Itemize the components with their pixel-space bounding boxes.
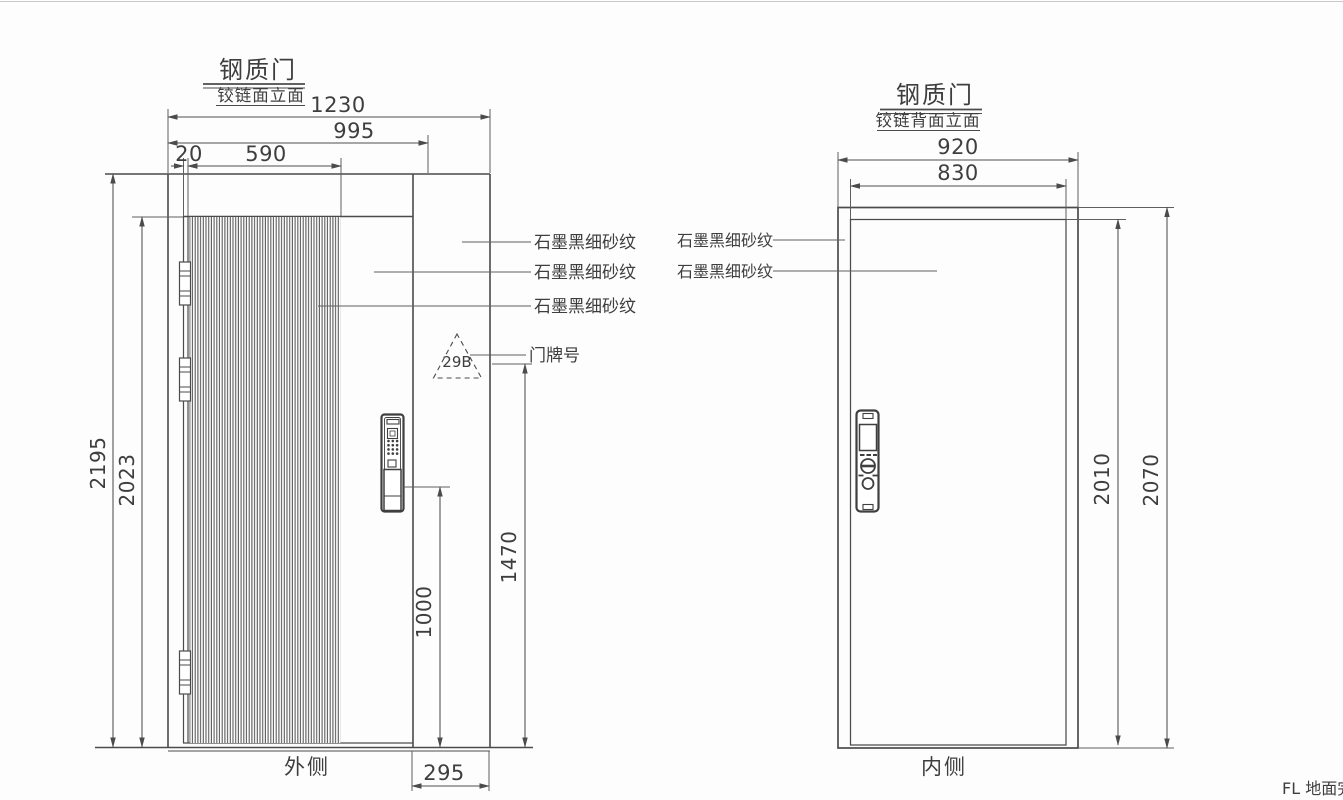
right-dimensions: 920 830 2010 2070 [838, 135, 1174, 748]
dim-side-panel-width: 295 [423, 761, 465, 785]
left-door-leaf [183, 216, 413, 743]
drawing-sheet: 钢质门 铰链面立面 [0, 0, 1343, 800]
right-side-label: 内侧 [921, 755, 967, 779]
label-finish-face: 石墨黑细砂纹 [534, 263, 636, 283]
ribbed-texture-area [190, 217, 341, 743]
label-door-plate: 门牌号 [529, 346, 580, 366]
label-right-finish-frame: 石墨黑细砂纹 [677, 231, 773, 250]
left-side-label: 外侧 [284, 755, 330, 779]
dim-total-width: 1230 [310, 93, 365, 117]
left-annotations: 石墨黑细砂纹 石墨黑细砂纹 石墨黑细砂纹 29B 门牌号 [318, 233, 636, 378]
right-drawing-title: 钢质门 [896, 81, 974, 109]
door-plate-number: 29B [442, 353, 471, 371]
dim-right-frame-width: 920 [937, 135, 979, 159]
left-door-elevation: 钢质门 铰链面立面 [86, 56, 636, 791]
dim-plate-height: 1470 [497, 531, 521, 584]
lock-handle [384, 470, 401, 511]
floor-level-note: FL 地面完 [1282, 779, 1343, 798]
dim-right-frame-height: 2070 [1139, 454, 1163, 507]
right-door-elevation: 钢质门 铰链背面立面 [677, 81, 1174, 779]
label-finish-panel: 石墨黑细砂纹 [534, 233, 636, 253]
dim-ribbed-width: 590 [245, 142, 287, 166]
right-door-leaf [851, 220, 1067, 746]
label-finish-ribbed: 石墨黑细砂纹 [534, 297, 636, 317]
hinge-middle [180, 358, 191, 401]
hinge-bottom [180, 651, 191, 694]
dim-lock-height: 1000 [412, 586, 436, 639]
smart-lock-exterior [382, 415, 404, 512]
dim-total-height: 2195 [86, 437, 110, 490]
dim-right-leaf-width: 830 [937, 161, 979, 185]
label-right-finish-face: 石墨黑细砂纹 [677, 262, 773, 281]
dim-frame-width: 995 [333, 119, 375, 143]
dim-hinge-gap: 20 [175, 142, 203, 166]
dim-leaf-height: 2023 [115, 454, 139, 507]
left-drawing-subtitle: 铰链面立面 [217, 86, 305, 105]
door-elevation-drawing: 钢质门 铰链面立面 [0, 0, 1343, 800]
smart-lock-interior [857, 411, 879, 512]
hinge-top [180, 262, 191, 305]
door-hinges [180, 262, 191, 694]
left-drawing-title: 钢质门 [219, 56, 297, 84]
right-drawing-subtitle: 铰链背面立面 [876, 111, 981, 130]
right-annotations: 石墨黑细砂纹 石墨黑细砂纹 [677, 231, 937, 281]
dim-right-leaf-height: 2010 [1090, 453, 1114, 506]
